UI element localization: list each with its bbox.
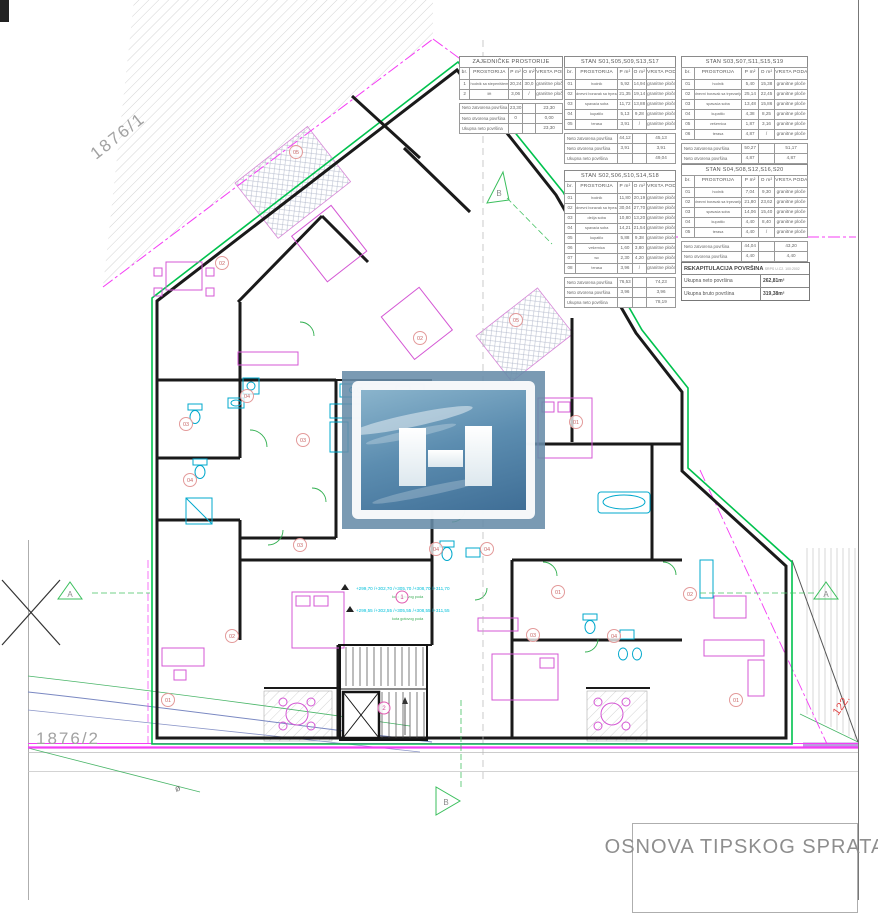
recap-title: REKAPITULACIJA POVRŠINA SRPS U.C2. 100:2…: [682, 263, 809, 274]
table-col-header: PROSTORIJA: [470, 68, 509, 80]
summary-value: [522, 124, 535, 134]
table-col-header: PROSTORIJA: [694, 176, 742, 188]
table-cell: /: [758, 130, 774, 140]
table-col-header: VRSTA PODA: [647, 68, 676, 80]
table-cell: 14,06: [742, 208, 758, 218]
summary-label: Neto zatvorena površina: [682, 242, 742, 252]
table-cell: 5,13: [618, 110, 632, 120]
summary-value: [632, 298, 646, 308]
table-cell: 03: [565, 100, 576, 110]
summary-label: Neto zatvorena površina: [682, 144, 742, 154]
table-cell: granitne ploče: [775, 208, 808, 218]
table-col-header: br.: [565, 68, 576, 80]
table-cell: 3,16: [758, 120, 774, 130]
room-table: br.PROSTORIJAP m²O m²VRSTA PODA1hodnik s…: [459, 67, 563, 100]
summary-row: Ukupna neto površina23,30: [460, 124, 563, 134]
table-cell: 30,0: [522, 79, 535, 89]
parcel-label-lower: 1876/2: [36, 729, 100, 748]
table-cell: 15,40: [758, 208, 774, 218]
room-number-badge: 01: [162, 694, 175, 707]
table-cell: 04: [682, 110, 695, 120]
table-cell: 07: [565, 254, 576, 264]
summary-value: 78,19: [647, 298, 676, 308]
table-row: 07wc2,304,20granitne ploče: [565, 254, 676, 264]
recap-row-value: 262,81m²: [761, 275, 809, 287]
table-cell: 03: [565, 214, 576, 224]
table-cell: 27,70: [632, 203, 646, 213]
room-number-badge: 01: [552, 586, 565, 599]
summary-label: Neto otvorena površina: [460, 114, 509, 124]
table-cell: hodnik: [694, 79, 742, 89]
table-cell: granitne ploče: [775, 79, 808, 89]
table-cell: 21,80: [742, 197, 758, 207]
table-cell: 10,80: [618, 214, 632, 224]
summary-row: Ukupna neto površina78,19: [565, 298, 676, 308]
table-row: 03spavaća soba11,7213,88granitne ploče: [565, 100, 676, 110]
table-cell: granitne ploče: [647, 110, 676, 120]
table-cell: spavaća soba: [694, 208, 742, 218]
table-cell: 04: [682, 218, 695, 228]
room-number-badge: 04: [241, 390, 254, 403]
table-stan-s03: STAN S03,S07,S11,S15,S19br.PROSTORIJAP m…: [681, 56, 808, 174]
table-header-row: br.PROSTORIJAP m²O m²VRSTA PODA: [682, 176, 808, 188]
summary-value: 4,87: [775, 154, 808, 164]
logo-h-right-bar: [465, 426, 492, 486]
summary-value: 43,20: [775, 242, 808, 252]
table-cell: 19,14: [632, 89, 646, 99]
table-cell: 4,87: [742, 130, 758, 140]
table-row: 06terasa4,87/granitne ploče: [682, 130, 808, 140]
table-col-header: br.: [565, 182, 576, 194]
room-number-badge: 03: [297, 434, 310, 447]
table-cell: 3,06: [509, 89, 522, 99]
table-row: 03spavaća soba14,0615,40granitne ploče: [682, 208, 808, 218]
svg-text:04: 04: [244, 394, 250, 400]
svg-text:05: 05: [513, 318, 519, 324]
table-cell: granitne ploče: [647, 79, 676, 89]
table-title: STAN S03,S07,S11,S15,S19: [681, 56, 808, 67]
table-cell: 02: [565, 89, 576, 99]
area-recap-table: REKAPITULACIJA POVRŠINA SRPS U.C2. 100:2…: [681, 262, 810, 301]
summary-label: Neto otvorena površina: [682, 154, 742, 164]
table-cell: 04: [565, 110, 576, 120]
table-cell: hodnik: [694, 187, 742, 197]
table-cell: granitne ploče: [536, 89, 563, 99]
summary-row: Neto zatvorena površina50,2751,17: [682, 144, 808, 154]
table-stan-s04: STAN S04,S08,S12,S16,S20br.PROSTORIJAP m…: [681, 164, 808, 272]
section-marker-b-top: B: [487, 172, 509, 203]
table-cell: kupatilo: [694, 110, 742, 120]
summary-value: 3,96: [647, 288, 676, 298]
summary-row: Neto otvorena površina00,00: [460, 114, 563, 124]
table-title: STAN S02,S06,S10,S14,S18: [564, 170, 676, 181]
summary-value: [758, 242, 774, 252]
table-col-header: br.: [460, 68, 470, 80]
table-cell: 23,62: [758, 197, 774, 207]
table-cell: 3,96: [618, 264, 632, 274]
logo-h-middle-bar: [428, 450, 463, 467]
table-row: 02dnevni boravak sa trpezarijom25,1422,4…: [682, 89, 808, 99]
table-cell: granitne ploče: [647, 234, 676, 244]
table-cell: lift: [470, 89, 509, 99]
table-summary: Neto zatvorena površina44,1245,13Neto ot…: [564, 133, 676, 164]
room-table: br.PROSTORIJAP m²O m²VRSTA PODA01hodnik5…: [564, 67, 676, 130]
table-cell: 8,40: [758, 218, 774, 228]
table-cell: 03: [682, 208, 695, 218]
summary-value: 45,13: [647, 134, 676, 144]
recap-row-label: Ukupna bruto površina: [682, 288, 761, 300]
table-cell: 9,30: [758, 187, 774, 197]
table-cell: granitne ploče: [647, 214, 676, 224]
table-cell: 2: [460, 89, 470, 99]
summary-row: Neto zatvorena površina76,5374,23: [565, 278, 676, 288]
summary-label: Neto zatvorena površina: [565, 134, 618, 144]
table-cell: vešernica: [694, 120, 742, 130]
table-row: 03dečja soba10,8013,20granitne ploče: [565, 214, 676, 224]
room-number-badge: 05: [290, 146, 303, 159]
svg-text:01: 01: [573, 420, 579, 426]
table-cell: 1,60: [618, 244, 632, 254]
table-cell: granitne ploče: [647, 244, 676, 254]
summary-value: 3,91: [647, 144, 676, 154]
table-cell: granitne ploče: [647, 203, 676, 213]
summary-value: 49,04: [647, 154, 676, 164]
table-cell: 3,80: [632, 244, 646, 254]
summary-value: [618, 154, 632, 164]
svg-text:A: A: [823, 590, 829, 599]
table-cell: 1: [460, 79, 470, 89]
room-number-badge: 04: [481, 543, 494, 556]
svg-text:02: 02: [229, 634, 235, 640]
svg-text:04: 04: [187, 478, 193, 484]
table-row: 1hodnik sa stepeništem20,2430,0granitne …: [460, 79, 563, 89]
table-cell: 15,86: [758, 100, 774, 110]
table-col-header: VRSTA PODA: [536, 68, 563, 80]
table-title: STAN S04,S08,S12,S16,S20: [681, 164, 808, 175]
table-col-header: PROSTORIJA: [576, 182, 618, 194]
table-col-header: br.: [682, 176, 695, 188]
level-annotations: +299,70 /+302,70 /+305,70 /+308,70 /+311…: [341, 584, 450, 621]
svg-text:02: 02: [417, 336, 423, 342]
room-table: br.PROSTORIJAP m²O m²VRSTA PODA01hodnik7…: [681, 175, 808, 238]
table-cell: 02: [682, 197, 695, 207]
summary-value: 23,30: [536, 104, 563, 114]
table-cell: 3,91: [618, 120, 632, 130]
summary-row: Neto otvorena površina4,404,40: [682, 252, 808, 262]
table-cell: 13,48: [742, 100, 758, 110]
section-marker-b-bottom: B: [436, 787, 460, 815]
table-cell: granitne ploče: [647, 264, 676, 274]
table-cell: granitne ploče: [647, 224, 676, 234]
table-cell: terasa: [694, 130, 742, 140]
table-cell: 22,45: [758, 89, 774, 99]
table-row: 02dnevni boravak sa trpezarijom30,0427,7…: [565, 203, 676, 213]
summary-value: 51,17: [775, 144, 808, 154]
summary-row: Neto zatvorena površina44,0443,20: [682, 242, 808, 252]
summary-row: Neto otvorena površina3,963,96: [565, 288, 676, 298]
table-cell: 5,40: [742, 79, 758, 89]
summary-value: [632, 154, 646, 164]
summary-value: [618, 298, 632, 308]
table-cell: 01: [565, 79, 576, 89]
table-cell: granitne ploče: [775, 228, 808, 238]
table-cell: 4,38: [742, 110, 758, 120]
table-col-header: P m²: [618, 182, 632, 194]
table-cell: 20,19: [632, 193, 646, 203]
table-cell: 13,88: [632, 100, 646, 110]
table-cell: granitne ploče: [775, 130, 808, 140]
summary-value: 3,96: [618, 288, 632, 298]
summary-value: [632, 278, 646, 288]
table-summary: Neto zatvorena površina23,3023,30Neto ot…: [459, 103, 563, 134]
recap-row: Ukupna neto površina 262,81m²: [682, 274, 809, 287]
table-cell: dečja soba: [576, 214, 618, 224]
svg-text:03: 03: [183, 422, 189, 428]
summary-value: 3,91: [618, 144, 632, 154]
table-cell: hodnik sa stepeništem: [470, 79, 509, 89]
table-cell: 5,92: [618, 79, 632, 89]
summary-label: Neto otvorena površina: [565, 144, 618, 154]
table-cell: /: [632, 264, 646, 274]
table-summary: Neto zatvorena površina76,5374,23Neto ot…: [564, 277, 676, 308]
room-number-badge: 04: [608, 630, 621, 643]
table-zajednicke-prostorije: ZAJEDNIČKE PROSTORIJEbr.PROSTORIJAP m²O …: [459, 56, 563, 134]
table-row: 04kupatilo4,408,40granitne ploče: [682, 218, 808, 228]
table-cell: 8,25: [758, 110, 774, 120]
table-cell: granitne ploče: [647, 89, 676, 99]
table-cell: /: [632, 120, 646, 130]
summary-row: Ukupna neto površina49,04: [565, 154, 676, 164]
summary-row: Neto otvorena površina3,913,91: [565, 144, 676, 154]
watermark-frame: [352, 381, 535, 519]
logo-h-left-bar: [399, 428, 426, 486]
table-row: 02dnevni boravak sa trpezarijom21,8023,6…: [682, 197, 808, 207]
table-cell: 04: [565, 224, 576, 234]
svg-text:02: 02: [687, 592, 693, 598]
summary-value: 74,23: [647, 278, 676, 288]
table-cell: 25,14: [742, 89, 758, 99]
table-cell: 06: [565, 244, 576, 254]
table-col-header: O m²: [632, 182, 646, 194]
table-cell: /: [522, 89, 535, 99]
table-row: 05terasa4,40/granitne ploče: [682, 228, 808, 238]
summary-value: [632, 288, 646, 298]
summary-value: [632, 134, 646, 144]
table-row: 2lift3,06/granitne ploče: [460, 89, 563, 99]
summary-value: 50,27: [742, 144, 758, 154]
table-header-row: br.PROSTORIJAP m²O m²VRSTA PODA: [460, 68, 563, 80]
watermark-logo: [342, 371, 545, 529]
position-badge: 1: [396, 591, 408, 603]
summary-value: 23,30: [509, 104, 522, 114]
table-cell: 06: [682, 130, 695, 140]
elevator-shaft: [343, 692, 379, 738]
table-cell: terasa: [576, 264, 618, 274]
table-cell: 02: [565, 203, 576, 213]
table-cell: dnevni boravak sa trpezarijom: [576, 203, 618, 213]
table-cell: kupatilo: [576, 234, 618, 244]
table-col-header: P m²: [509, 68, 522, 80]
table-col-header: O m²: [758, 176, 774, 188]
table-title: STAN S01,S05,S09,S13,S17: [564, 56, 676, 67]
table-col-header: P m²: [742, 68, 758, 80]
summary-value: 4,40: [775, 252, 808, 262]
benchmark-symbol: ø: [173, 782, 182, 793]
table-cell: granitne ploče: [536, 79, 563, 89]
room-number-badge: 03: [527, 629, 540, 642]
table-cell: spavaća soba: [576, 224, 618, 234]
table-row: 03spavaća soba13,4815,86granitne ploče: [682, 100, 808, 110]
table-cell: granitne ploče: [775, 110, 808, 120]
table-row: 05kupatilo5,889,38granitne ploče: [565, 234, 676, 244]
table-col-header: O m²: [522, 68, 535, 80]
table-cell: 14,21: [618, 224, 632, 234]
table-header-row: br.PROSTORIJAP m²O m²VRSTA PODA: [565, 182, 676, 194]
table-col-header: P m²: [742, 176, 758, 188]
recap-row-value: 319,38m²: [761, 288, 809, 300]
table-row: 05vešernica1,873,16granitne ploče: [682, 120, 808, 130]
table-cell: terasa: [576, 120, 618, 130]
table-cell: granitne ploče: [775, 218, 808, 228]
summary-row: Neto zatvorena površina23,3023,30: [460, 104, 563, 114]
table-cell: 1,87: [742, 120, 758, 130]
table-cell: 9,38: [632, 234, 646, 244]
table-cell: dnevni boravak sa trpezarijom: [576, 89, 618, 99]
table-col-header: P m²: [618, 68, 632, 80]
table-cell: 7,04: [742, 187, 758, 197]
table-col-header: PROSTORIJA: [576, 68, 618, 80]
table-cell: 4,20: [632, 254, 646, 264]
table-row: 06vešernica1,603,80granitne ploče: [565, 244, 676, 254]
table-col-header: VRSTA PODA: [647, 182, 676, 194]
summary-value: [522, 104, 535, 114]
svg-text:+299,55 /+302,55 /+305,55 /+30: +299,55 /+302,55 /+305,55 /+308,55 /+311…: [356, 608, 450, 613]
summary-label: Neto zatvorena površina: [460, 104, 509, 114]
table-col-header: VRSTA PODA: [775, 68, 808, 80]
table-cell: wc: [576, 254, 618, 264]
table-col-header: PROSTORIJA: [694, 68, 742, 80]
table-cell: 14,94: [632, 79, 646, 89]
table-cell: dnevni boravak sa trpezarijom: [694, 89, 742, 99]
table-cell: 9,28: [632, 110, 646, 120]
room-number-badge: 02: [216, 257, 229, 270]
table-row: 08terasa3,96/granitne ploče: [565, 264, 676, 274]
table-row: 01hodnik11,8020,19granitne ploče: [565, 193, 676, 203]
position-badge: 2: [378, 702, 390, 714]
table-cell: granitne ploče: [647, 193, 676, 203]
table-cell: 5,88: [618, 234, 632, 244]
section-marker-a-left: A: [58, 582, 82, 599]
table-cell: granitne ploče: [775, 100, 808, 110]
table-cell: 05: [565, 120, 576, 130]
table-stan-s01: STAN S01,S05,S09,S13,S17br.PROSTORIJAP m…: [564, 56, 676, 164]
table-row: 05terasa3,91/granitne ploče: [565, 120, 676, 130]
svg-text:03: 03: [530, 633, 536, 639]
table-cell: granitne ploče: [775, 89, 808, 99]
table-cell: 21,54: [632, 224, 646, 234]
table-cell: 13,20: [632, 214, 646, 224]
summary-value: 23,30: [536, 124, 563, 134]
summary-label: Neto otvorena površina: [682, 252, 742, 262]
corner-cross-marker: [2, 580, 60, 645]
table-row: 02dnevni boravak sa trpezarijom21,3519,1…: [565, 89, 676, 99]
room-number-badge: 04: [430, 543, 443, 556]
table-cell: spavaća soba: [576, 100, 618, 110]
table-cell: 02: [682, 89, 695, 99]
table-cell: 03: [682, 100, 695, 110]
summary-value: [509, 124, 522, 134]
table-col-header: br.: [682, 68, 695, 80]
svg-text:02: 02: [219, 261, 225, 267]
sheet-corner-mark: [0, 0, 9, 22]
summary-value: [758, 154, 774, 164]
table-cell: 05: [682, 120, 695, 130]
svg-text:01: 01: [555, 590, 561, 596]
room-table: br.PROSTORIJAP m²O m²VRSTA PODA01hodnik5…: [681, 67, 808, 140]
table-cell: dnevni boravak sa trpezarijom: [694, 197, 742, 207]
recap-standard-ref: SRPS U.C2. 100:2002: [765, 267, 800, 271]
table-cell: 05: [682, 228, 695, 238]
table-cell: 08: [565, 264, 576, 274]
svg-text:A: A: [67, 590, 73, 599]
room-number-badge: 03: [180, 418, 193, 431]
watermark-image: [361, 390, 526, 510]
svg-text:03: 03: [300, 438, 306, 444]
room-number-badge: 02: [414, 332, 427, 345]
table-cell: granitne ploče: [647, 100, 676, 110]
table-cell: kupatilo: [576, 110, 618, 120]
table-cell: 30,04: [618, 203, 632, 213]
room-number-badge: 04: [184, 474, 197, 487]
svg-text:05: 05: [293, 150, 299, 156]
table-cell: 01: [565, 193, 576, 203]
table-cell: hodnik: [576, 193, 618, 203]
table-header-row: br.PROSTORIJAP m²O m²VRSTA PODA: [682, 68, 808, 80]
table-cell: 11,72: [618, 100, 632, 110]
room-table: br.PROSTORIJAP m²O m²VRSTA PODA01hodnik1…: [564, 181, 676, 274]
table-cell: terasa: [694, 228, 742, 238]
table-row: 01hodnik5,4015,38granitne ploče: [682, 79, 808, 89]
svg-text:01: 01: [165, 698, 171, 704]
table-stan-s02: STAN S02,S06,S10,S14,S18br.PROSTORIJAP m…: [564, 170, 676, 308]
room-number-badge: 02: [684, 588, 697, 601]
table-row: 04kupatilo5,139,28granitne ploče: [565, 110, 676, 120]
recap-row: Ukupna bruto površina 319,38m²: [682, 287, 809, 300]
svg-text:04: 04: [611, 634, 617, 640]
summary-label: Ukupna neto površina: [460, 124, 509, 134]
table-row: 04kupatilo4,388,25granitne ploče: [682, 110, 808, 120]
table-cell: 01: [682, 187, 695, 197]
summary-label: Ukupna neto površina: [565, 298, 618, 308]
summary-value: [632, 144, 646, 154]
table-cell: 4,40: [742, 218, 758, 228]
svg-text:04: 04: [433, 547, 439, 553]
drawing-title: OSNOVA TIPSKOG SPRATA: [605, 836, 878, 859]
svg-text:B: B: [496, 189, 501, 198]
room-number-badge: 03: [294, 539, 307, 552]
room-number-badge: 02: [226, 630, 239, 643]
table-col-header: VRSTA PODA: [775, 176, 808, 188]
table-col-header: O m²: [632, 68, 646, 80]
table-row: 01hodnik7,049,30granitne ploče: [682, 187, 808, 197]
room-number-badge: 01: [570, 416, 583, 429]
table-cell: granitne ploče: [775, 187, 808, 197]
summary-value: [522, 114, 535, 124]
table-cell: 01: [682, 79, 695, 89]
recap-row-label: Ukupna neto površina: [682, 275, 761, 287]
svg-text:B: B: [443, 798, 448, 807]
table-cell: granitne ploče: [775, 197, 808, 207]
